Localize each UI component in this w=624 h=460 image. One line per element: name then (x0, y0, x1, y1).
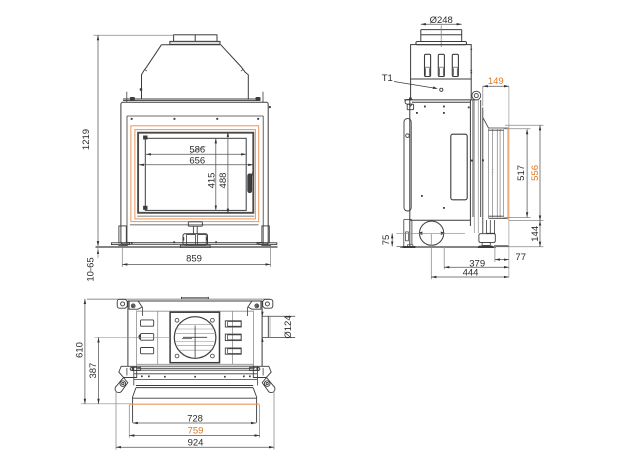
svg-text:444: 444 (463, 268, 479, 279)
svg-text:656: 656 (189, 155, 205, 166)
svg-text:610: 610 (75, 342, 86, 358)
svg-text:Ø124: Ø124 (283, 315, 294, 338)
svg-text:75: 75 (381, 235, 392, 246)
svg-text:859: 859 (186, 254, 202, 265)
svg-text:Ø248: Ø248 (430, 15, 453, 26)
svg-text:149: 149 (488, 76, 504, 87)
svg-text:144: 144 (530, 226, 541, 242)
svg-text:387: 387 (88, 363, 99, 379)
svg-text:517: 517 (516, 165, 527, 181)
svg-text:586: 586 (189, 144, 205, 155)
svg-text:759: 759 (188, 425, 204, 436)
svg-text:924: 924 (188, 438, 204, 449)
svg-text:10-65: 10-65 (86, 257, 97, 281)
svg-text:488: 488 (218, 173, 229, 189)
svg-text:T1: T1 (382, 73, 393, 84)
svg-text:77: 77 (515, 252, 526, 263)
svg-text:1219: 1219 (81, 129, 92, 150)
svg-text:556: 556 (530, 165, 541, 181)
svg-text:415: 415 (206, 173, 217, 189)
svg-text:728: 728 (187, 413, 203, 424)
